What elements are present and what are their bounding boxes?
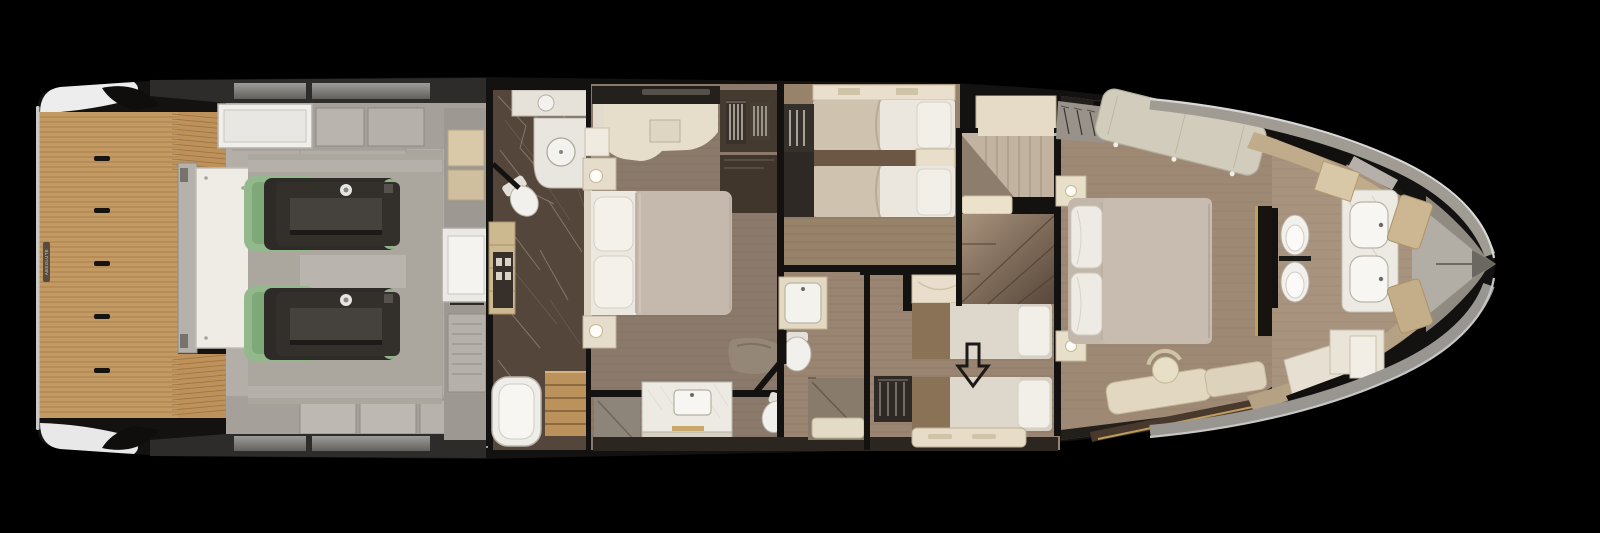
svg-text:ABSOLUTE: ABSOLUTE	[44, 249, 49, 275]
